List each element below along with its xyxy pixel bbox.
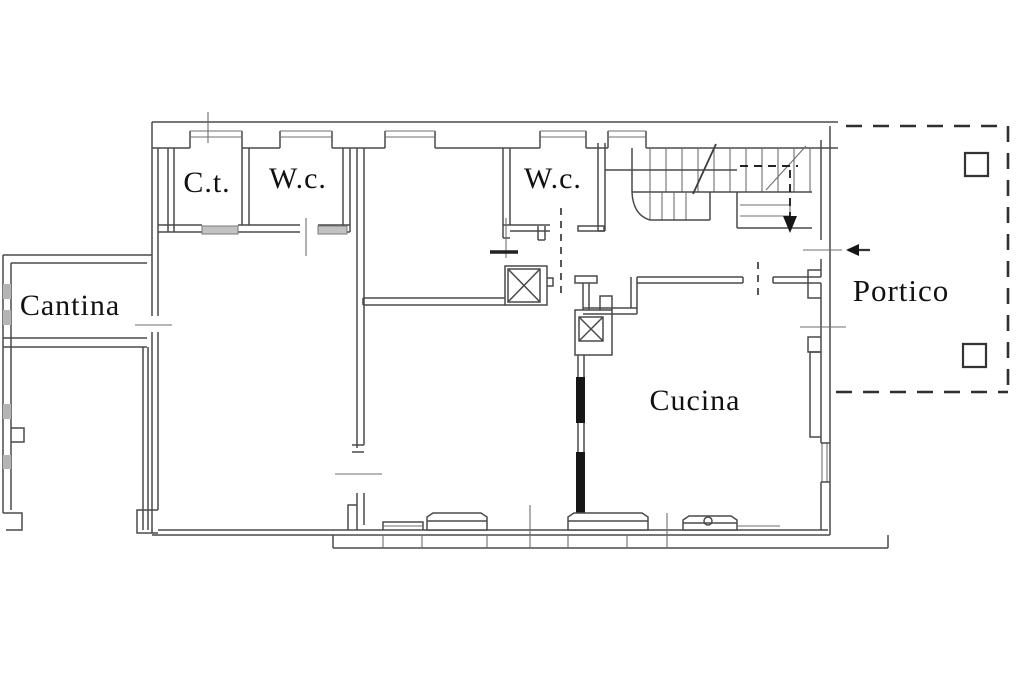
entrance-arrow [846, 244, 859, 256]
room-label-cucina: Cucina [650, 384, 741, 418]
middle-room-wall [363, 266, 553, 305]
portico-boundary [836, 126, 1008, 392]
room-label-cantina: Cantina [20, 289, 120, 323]
floorplan-drawing [0, 0, 1024, 682]
room-label-wc2: W.c. [524, 162, 582, 196]
stair-break-line [693, 144, 716, 194]
bottom-wall [152, 505, 888, 548]
room-label-portico: Portico [853, 273, 950, 309]
flue-box-2 [579, 317, 603, 341]
portico-pillar-1 [965, 153, 988, 176]
floor-plan: C.t. W.c. W.c. Cantina Cucina Portico [0, 0, 1024, 682]
flue-box-1 [508, 269, 540, 302]
middle-partition-wall [335, 148, 382, 530]
staircase [605, 144, 812, 233]
wc1-door-sill [318, 226, 347, 234]
room-label-ct: C.t. [183, 166, 230, 200]
portico-pillar-2 [963, 344, 986, 367]
room-label-wc1: W.c. [269, 162, 327, 196]
ct-door-sill [202, 226, 238, 234]
top-wall [152, 122, 838, 148]
stair-direction-line [740, 166, 798, 216]
stair-down-arrow [783, 216, 797, 233]
